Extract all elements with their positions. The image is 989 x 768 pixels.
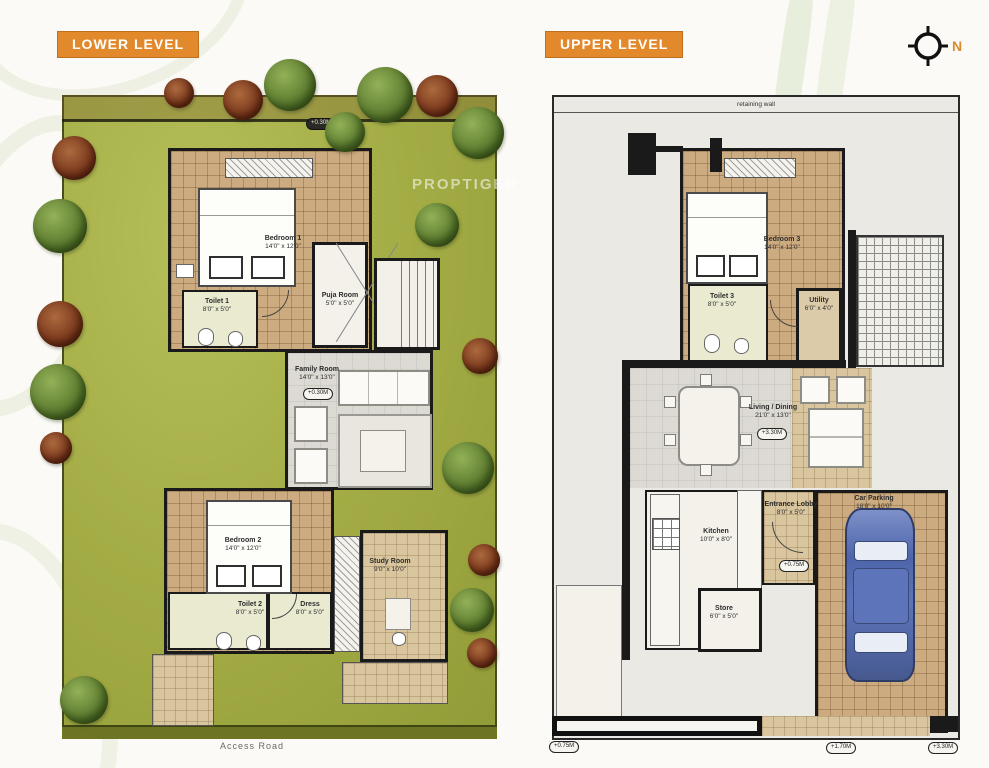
toilet-fixture xyxy=(704,334,720,353)
driveway xyxy=(152,654,214,726)
coffee-table xyxy=(360,430,406,472)
planter-wall xyxy=(552,716,762,736)
entrance-lobby-label: Entrance Lobby 8'0" x 5'0" xyxy=(759,500,823,518)
wardrobe xyxy=(334,536,360,652)
floorplan-canvas: LOWER LEVEL Access Road xyxy=(0,0,989,768)
toilet-1-label: Toilet 1 8'0" x 5'0" xyxy=(185,297,249,315)
puja-room-label: Puja Room 5'0" x 5'0" xyxy=(310,291,370,309)
tree xyxy=(325,112,365,152)
shrub xyxy=(37,301,83,347)
retaining-wall-line xyxy=(554,112,958,113)
study-room-label: Study Room 9'0" x 10'0" xyxy=(358,557,422,575)
access-road-label: Access Road xyxy=(192,741,312,751)
north-label: N xyxy=(952,38,962,54)
sofa xyxy=(808,408,864,468)
patio xyxy=(342,662,448,704)
lower-level-badge: LOWER LEVEL xyxy=(57,31,199,58)
pillow xyxy=(216,565,246,587)
armchair xyxy=(836,376,866,404)
wall-segment xyxy=(622,360,846,368)
tree xyxy=(60,676,108,724)
dining-chair xyxy=(664,396,676,408)
toilet-fixture xyxy=(216,632,232,650)
toilet-3-label: Toilet 3 8'0" x 5'0" xyxy=(690,292,754,310)
terrace xyxy=(556,585,622,731)
sofa xyxy=(338,370,430,406)
level-marker: +1.70M xyxy=(826,742,856,754)
armchair xyxy=(800,376,830,404)
tree xyxy=(450,588,494,632)
toilet-fixture xyxy=(246,635,261,651)
living-dining-label: Living / Dining 21'0" x 13'0" xyxy=(741,403,805,421)
level-marker: +0.75M xyxy=(549,741,579,753)
tree xyxy=(452,107,504,159)
dress-label: Dress 8'0" x 5'0" xyxy=(278,600,342,618)
lower-level-label: LOWER LEVEL xyxy=(72,36,184,52)
bed-fold xyxy=(688,217,766,218)
stair-landing xyxy=(377,261,399,347)
level-marker: +3.30M xyxy=(928,742,958,754)
dining-chair xyxy=(700,464,712,476)
tree xyxy=(264,59,316,111)
wall-segment xyxy=(628,133,656,175)
family-room-label: Family Room 14'0" x 13'0" xyxy=(287,365,347,383)
shrub xyxy=(468,544,500,576)
lobby-level-marker: +0.75M xyxy=(779,560,809,572)
tree xyxy=(442,442,494,494)
stairs-lower xyxy=(374,258,440,350)
wall-segment xyxy=(930,716,958,732)
pillow xyxy=(251,256,285,279)
car-roof xyxy=(853,568,909,624)
toilet-fixture xyxy=(198,328,214,346)
wall-segment xyxy=(848,230,856,370)
toilet-fixture xyxy=(734,338,749,354)
access-road xyxy=(62,725,497,739)
proptiger-watermark: PROPTIGER xyxy=(412,176,518,193)
pillow xyxy=(252,565,282,587)
car xyxy=(845,508,915,682)
shrub xyxy=(467,638,497,668)
armchair xyxy=(294,448,328,484)
compound-wall xyxy=(62,119,497,122)
utility-label: Utility 6'0" x 4'0" xyxy=(789,296,849,314)
wardrobe xyxy=(225,158,313,178)
kitchen-label: Kitchen 10'0" x 8'0" xyxy=(686,527,746,545)
side-table xyxy=(176,264,194,278)
tree xyxy=(357,67,413,123)
bedroom-3-label: Bedroom 3 14'0" x 12'0" xyxy=(750,235,814,253)
bed-fold xyxy=(208,525,290,526)
car-windshield xyxy=(854,541,907,562)
carpet xyxy=(338,414,432,488)
pillow xyxy=(209,256,243,279)
upper-level-label: UPPER LEVEL xyxy=(560,36,668,52)
shrub xyxy=(52,136,96,180)
wall-segment xyxy=(628,146,683,152)
toilet-2-label: Toilet 2 8'0" x 5'0" xyxy=(218,600,282,618)
dining-chair xyxy=(740,434,752,446)
pillow xyxy=(729,255,758,277)
family-level-marker: +0.30M xyxy=(303,388,333,400)
dining-chair xyxy=(664,434,676,446)
retaining-wall-label: retaining wall xyxy=(706,101,806,108)
shrub xyxy=(40,432,72,464)
shrub xyxy=(223,80,263,120)
bedroom-1-label: Bedroom 1 14'0" x 12'0" xyxy=(251,234,315,252)
shrub xyxy=(416,75,458,117)
car-parking-label: Car Parking 18'0" x 10'0" xyxy=(842,494,906,512)
dining-chair xyxy=(700,374,712,386)
tree xyxy=(33,199,87,253)
study-chair xyxy=(392,632,406,646)
dining-table xyxy=(678,386,740,466)
pillow xyxy=(696,255,725,277)
living-level-marker: +3.30M xyxy=(757,428,787,440)
bed-fold xyxy=(200,215,294,216)
car-rear-window xyxy=(854,632,907,653)
shrub xyxy=(462,338,498,374)
wardrobe xyxy=(724,158,796,178)
north-compass-icon xyxy=(906,24,950,68)
shrub xyxy=(164,78,194,108)
kitchen-counter xyxy=(650,494,680,646)
study-desk xyxy=(385,598,411,630)
toilet-fixture xyxy=(228,331,243,347)
drive-path xyxy=(762,716,930,736)
wall-segment xyxy=(710,138,722,172)
upper-level-badge: UPPER LEVEL xyxy=(545,31,683,58)
store-label: Store 6'0" x 5'0" xyxy=(694,604,754,622)
tree xyxy=(415,203,459,247)
wall-segment xyxy=(622,360,630,660)
bedroom-2-label: Bedroom 2 14'0" x 12'0" xyxy=(211,536,275,554)
tree xyxy=(30,364,86,420)
armchair xyxy=(294,406,328,442)
kitchen-hob xyxy=(652,518,680,550)
stairs-upper xyxy=(856,235,944,367)
